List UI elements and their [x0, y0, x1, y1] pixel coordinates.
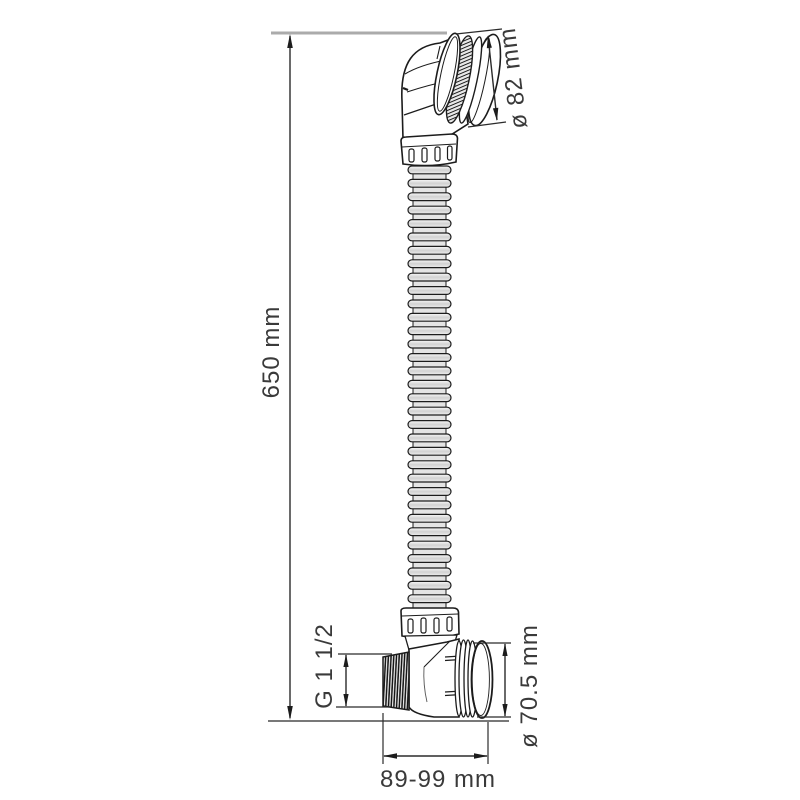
arrow-up-icon: [287, 34, 293, 48]
tee-body: [409, 639, 459, 717]
arrow-down-icon: [287, 706, 293, 720]
label-flange-diameter-705: ø 70.5 mm: [516, 624, 544, 748]
drain-diagram: [0, 0, 800, 800]
label-thread-size: G 1 1/2: [311, 623, 339, 709]
arrow-up-icon: [502, 643, 507, 656]
label-height-650: 650 mm: [258, 306, 286, 399]
technical-drawing-page: 650 mm ø 82 mm G 1 1/2 ø 70.5 mm 89-99 m…: [0, 0, 800, 800]
arrow-down-icon: [343, 694, 348, 707]
bottom-tee-assembly: [383, 608, 493, 718]
top-elbow-assembly: [401, 31, 507, 165]
dimension-height-650: [287, 34, 293, 720]
arrow-left-icon: [383, 753, 397, 758]
corrugated-hose: [408, 166, 451, 609]
arrow-up-icon: [343, 654, 348, 667]
arrow-down-icon: [502, 704, 507, 717]
label-width-range: 89-99 mm: [380, 766, 496, 794]
arrow-right-icon: [474, 753, 488, 758]
threaded-outlet-g1-2: [383, 652, 409, 710]
reference-lines: [268, 33, 509, 721]
